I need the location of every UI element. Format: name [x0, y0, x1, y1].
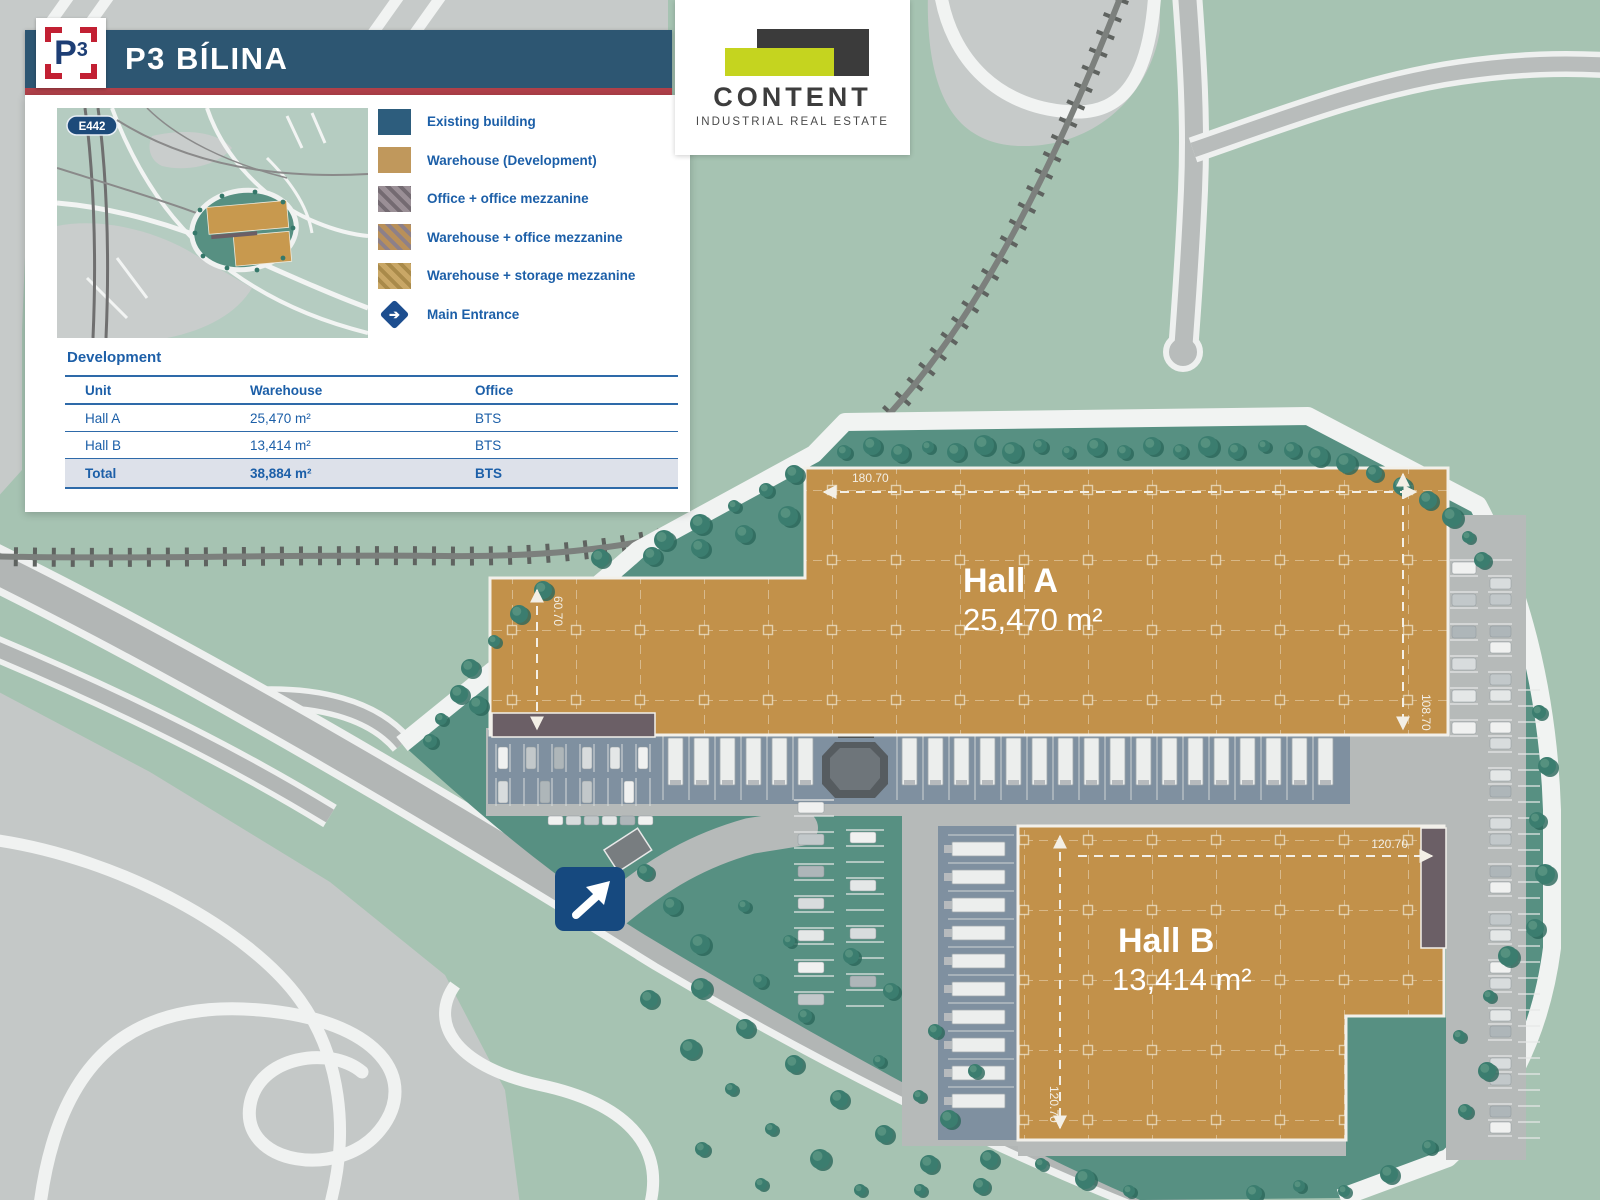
dim-hall-b-depth-label: 120.70 [1047, 1086, 1061, 1123]
cell-unit: Hall A [65, 411, 250, 426]
legend-label: Office + office mezzanine [427, 191, 589, 206]
hall-a-name-label: Hall A [963, 562, 1058, 600]
cell-unit: Hall B [65, 438, 250, 453]
legend-item-existing: Existing building [378, 108, 635, 135]
content-brand-box: CONTENT INDUSTRIAL REAL ESTATE [675, 0, 910, 155]
legend-label: Existing building [427, 114, 536, 129]
office-mezzanine-swatch [378, 186, 411, 212]
existing-building-swatch [378, 109, 411, 135]
hall-a-area-label: 25,470 m² [963, 602, 1103, 637]
legend-item-main-entrance: ➔ Main Entrance [378, 301, 635, 328]
content-logo-icon [675, 0, 910, 80]
legend-label: Main Entrance [427, 307, 519, 322]
site-plan-page: 180.70 108.70 60.70 120.70 120.70 Hall A… [0, 0, 1600, 1200]
legend-item-wh-storage-mezz: Warehouse + storage mezzanine [378, 262, 635, 289]
table-row-hall-b: Hall B 13,414 m² BTS [65, 432, 678, 459]
table-row-total: Total 38,884 m² BTS [65, 459, 678, 489]
warehouse-storage-mezzanine-swatch [378, 263, 411, 289]
cell-office: BTS [475, 466, 678, 481]
office-strip-hall-b [1421, 828, 1446, 948]
p3-logo: P3 [36, 18, 106, 88]
warehouse-swatch [378, 147, 411, 173]
table-row-hall-a: Hall A 25,470 m² BTS [65, 405, 678, 432]
table-header-row: Unit Warehouse Office [65, 375, 678, 405]
brand-tagline: INDUSTRIAL REAL ESTATE [675, 116, 910, 128]
dim-hall-a-width-label: 180.70 [852, 471, 889, 485]
legend-item-office-mezz: Office + office mezzanine [378, 185, 635, 212]
column-header-office: Office [475, 383, 678, 398]
development-table: Unit Warehouse Office Hall A 25,470 m² B… [65, 375, 678, 489]
cell-warehouse: 25,470 m² [250, 411, 475, 426]
main-entrance-icon: ➔ [378, 301, 411, 327]
legend: Existing building Warehouse (Development… [378, 108, 635, 328]
legend-item-wh-office-mezz: Warehouse + office mezzanine [378, 224, 635, 251]
office-strip-hall-a [492, 713, 655, 737]
cell-office: BTS [475, 438, 678, 453]
cell-office: BTS [475, 411, 678, 426]
legend-label: Warehouse (Development) [427, 153, 597, 168]
main-entrance-marker [555, 867, 625, 931]
dim-hall-b-width-label: 120.70 [1371, 837, 1408, 851]
development-section-title: Development [67, 349, 161, 366]
hall-b-area-label: 13,414 m² [1112, 962, 1252, 997]
cell-warehouse: 13,414 m² [250, 438, 475, 453]
page-title: P3 BÍLINA [125, 41, 288, 77]
dim-hall-a-left-label: 60.70 [551, 596, 565, 626]
cell-unit: Total [65, 466, 250, 481]
cell-warehouse: 38,884 m² [250, 466, 475, 481]
inset-map-canvas: E442 [57, 108, 368, 338]
route-badge-label: E442 [79, 121, 106, 133]
legend-label: Warehouse + office mezzanine [427, 230, 623, 245]
legend-item-warehouse: Warehouse (Development) [378, 147, 635, 174]
title-banner: P3 BÍLINA [25, 30, 672, 95]
legend-label: Warehouse + storage mezzanine [427, 268, 635, 283]
column-header-warehouse: Warehouse [250, 383, 475, 398]
location-inset-map: E442 [57, 108, 368, 338]
hall-b-name-label: Hall B [1118, 922, 1214, 960]
warehouse-office-mezzanine-swatch [378, 224, 411, 250]
column-header-unit: Unit [65, 383, 250, 398]
p3-logo-brackets-icon [36, 18, 106, 88]
dim-hall-a-depth-label: 108.70 [1419, 694, 1433, 731]
info-panel: E442 Existing building Warehouse (Develo… [25, 95, 690, 512]
brand-name: CONTENT [675, 82, 910, 113]
